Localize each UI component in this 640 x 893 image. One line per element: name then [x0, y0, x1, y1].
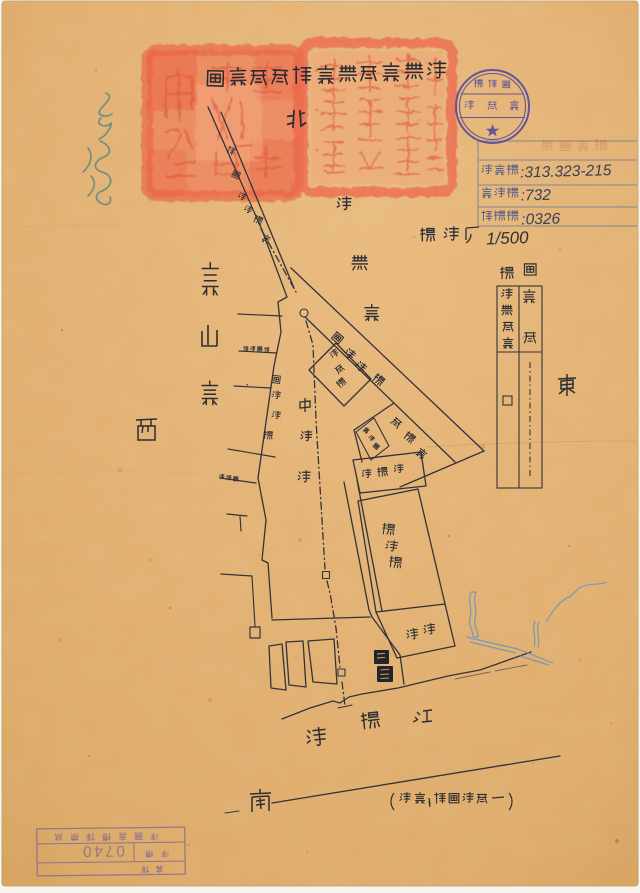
svg-text::732: :732 [520, 187, 551, 205]
svg-text::313.323-215: :313.323-215 [520, 162, 612, 181]
svg-text:1/500: 1/500 [486, 228, 530, 248]
svg-text::0326: :0326 [521, 210, 561, 228]
svg-text:0740: 0740 [80, 842, 125, 860]
